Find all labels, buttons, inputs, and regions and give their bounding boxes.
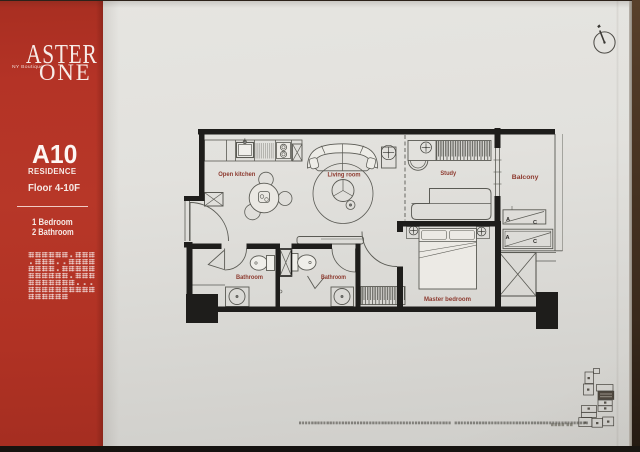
svg-text:Living room: Living room (327, 171, 360, 178)
svg-text:A: A (505, 235, 509, 241)
svg-text:Balcony: Balcony (512, 174, 539, 181)
svg-text:Bathroom: Bathroom (321, 275, 346, 281)
svg-text:Master bedroom: Master bedroom (424, 296, 471, 303)
svg-text:C: C (533, 220, 537, 226)
svg-text:C: C (533, 239, 537, 245)
svg-text:A: A (506, 217, 510, 223)
svg-text:Bathroom: Bathroom (236, 275, 263, 281)
svg-text:Study: Study (440, 170, 456, 177)
svg-text:Open kitchen: Open kitchen (218, 171, 255, 178)
